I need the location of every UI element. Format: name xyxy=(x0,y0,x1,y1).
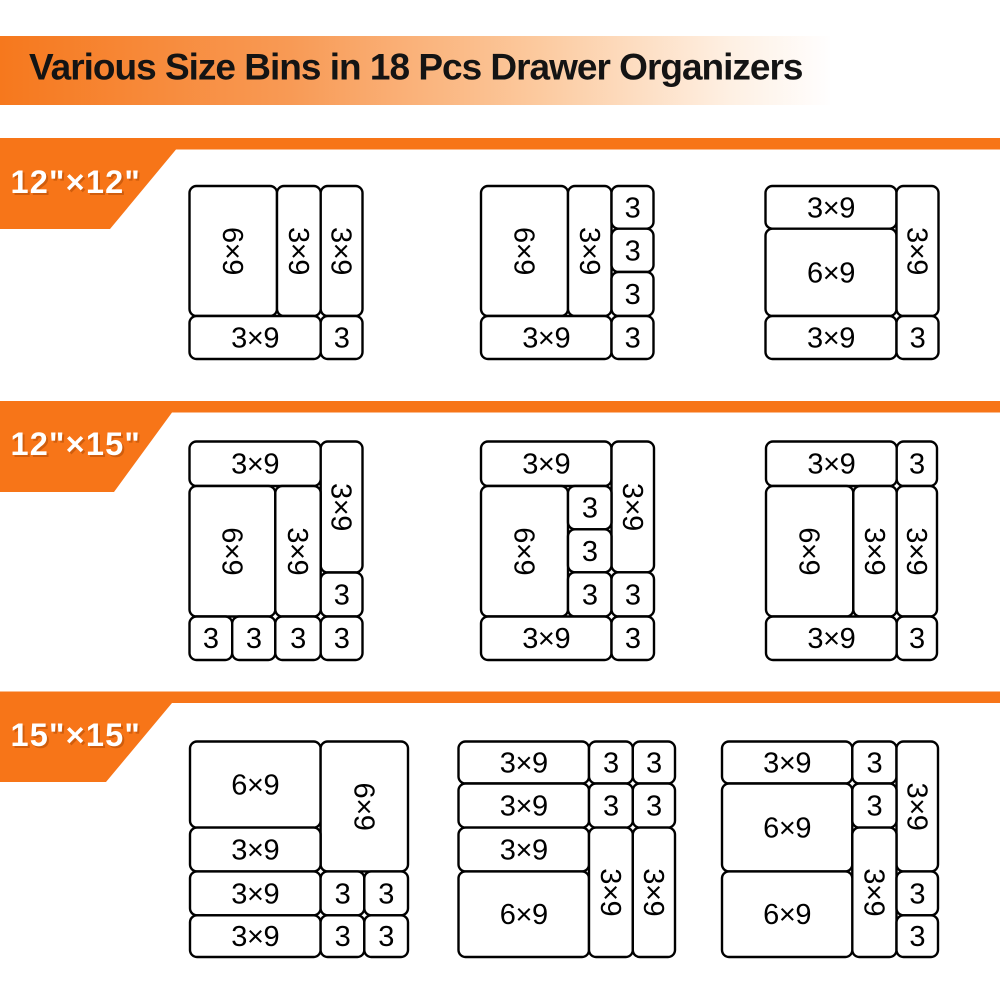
svg-text:6×9: 6×9 xyxy=(347,783,379,831)
svg-text:3: 3 xyxy=(625,192,641,224)
svg-text:3: 3 xyxy=(625,579,641,611)
svg-text:3: 3 xyxy=(582,579,598,611)
svg-text:3: 3 xyxy=(335,878,351,910)
svg-text:3×9: 3×9 xyxy=(522,323,570,355)
svg-text:3: 3 xyxy=(625,235,641,267)
svg-text:3: 3 xyxy=(290,623,306,655)
svg-text:3×9: 3×9 xyxy=(231,835,279,867)
svg-text:3: 3 xyxy=(625,623,641,655)
svg-text:3×9: 3×9 xyxy=(231,449,279,481)
svg-text:6×9: 6×9 xyxy=(508,527,540,575)
svg-text:3: 3 xyxy=(582,493,598,525)
svg-text:3×9: 3×9 xyxy=(573,227,605,275)
svg-text:3: 3 xyxy=(625,279,641,311)
svg-text:3×9: 3×9 xyxy=(763,748,811,780)
svg-text:12"×15": 12"×15" xyxy=(11,426,142,462)
svg-text:3×9: 3×9 xyxy=(231,878,279,910)
svg-text:6×9: 6×9 xyxy=(793,527,825,575)
svg-text:3×9: 3×9 xyxy=(616,483,648,531)
svg-text:6×9: 6×9 xyxy=(500,899,548,931)
svg-text:3×9: 3×9 xyxy=(522,623,570,655)
svg-text:3: 3 xyxy=(335,921,351,953)
svg-text:3: 3 xyxy=(334,580,350,612)
svg-text:Various Size Bins in 18 Pcs Dr: Various Size Bins in 18 Pcs Drawer Organ… xyxy=(29,47,803,88)
svg-text:3×9: 3×9 xyxy=(522,449,570,481)
svg-text:3: 3 xyxy=(378,878,394,910)
svg-text:3: 3 xyxy=(910,323,926,355)
svg-text:3: 3 xyxy=(246,623,262,655)
svg-text:6×9: 6×9 xyxy=(215,527,247,575)
svg-text:3×9: 3×9 xyxy=(807,623,855,655)
svg-text:3: 3 xyxy=(909,449,925,481)
svg-text:3: 3 xyxy=(203,623,219,655)
svg-text:3: 3 xyxy=(646,791,662,823)
svg-text:3×9: 3×9 xyxy=(231,921,279,953)
svg-text:3×9: 3×9 xyxy=(231,323,279,355)
svg-text:3×9: 3×9 xyxy=(500,791,548,823)
svg-text:3: 3 xyxy=(582,536,598,568)
svg-text:6×9: 6×9 xyxy=(763,812,811,844)
svg-text:3: 3 xyxy=(334,623,350,655)
svg-text:3×9: 3×9 xyxy=(900,527,932,575)
svg-text:3×9: 3×9 xyxy=(325,227,357,275)
svg-text:3×9: 3×9 xyxy=(281,527,313,575)
svg-text:3×9: 3×9 xyxy=(807,449,855,481)
svg-text:3×9: 3×9 xyxy=(807,323,855,355)
svg-text:12"×12": 12"×12" xyxy=(11,164,142,200)
svg-text:6×9: 6×9 xyxy=(231,770,279,802)
svg-text:3: 3 xyxy=(603,748,619,780)
svg-text:3×9: 3×9 xyxy=(857,868,889,916)
svg-text:3: 3 xyxy=(625,323,641,355)
svg-text:3×9: 3×9 xyxy=(325,483,357,531)
svg-text:6×9: 6×9 xyxy=(807,257,855,289)
svg-text:6×9: 6×9 xyxy=(763,899,811,931)
svg-text:3×9: 3×9 xyxy=(637,868,669,916)
svg-text:3: 3 xyxy=(909,623,925,655)
svg-text:3×9: 3×9 xyxy=(901,227,933,275)
svg-text:6×9: 6×9 xyxy=(508,227,540,275)
svg-text:15"×15": 15"×15" xyxy=(11,717,142,753)
svg-text:3×9: 3×9 xyxy=(594,868,626,916)
svg-text:3×9: 3×9 xyxy=(900,783,932,831)
svg-text:3: 3 xyxy=(378,921,394,953)
svg-text:3: 3 xyxy=(867,748,883,780)
svg-text:3×9: 3×9 xyxy=(807,192,855,224)
svg-text:3: 3 xyxy=(603,791,619,823)
svg-text:3: 3 xyxy=(867,791,883,823)
svg-text:3×9: 3×9 xyxy=(282,227,314,275)
svg-text:3: 3 xyxy=(646,748,662,780)
svg-text:3×9: 3×9 xyxy=(858,527,890,575)
svg-text:6×9: 6×9 xyxy=(216,227,248,275)
svg-text:3×9: 3×9 xyxy=(500,748,548,780)
svg-text:3: 3 xyxy=(334,323,350,355)
svg-text:3×9: 3×9 xyxy=(500,835,548,867)
svg-text:3: 3 xyxy=(909,878,925,910)
svg-text:3: 3 xyxy=(909,921,925,953)
